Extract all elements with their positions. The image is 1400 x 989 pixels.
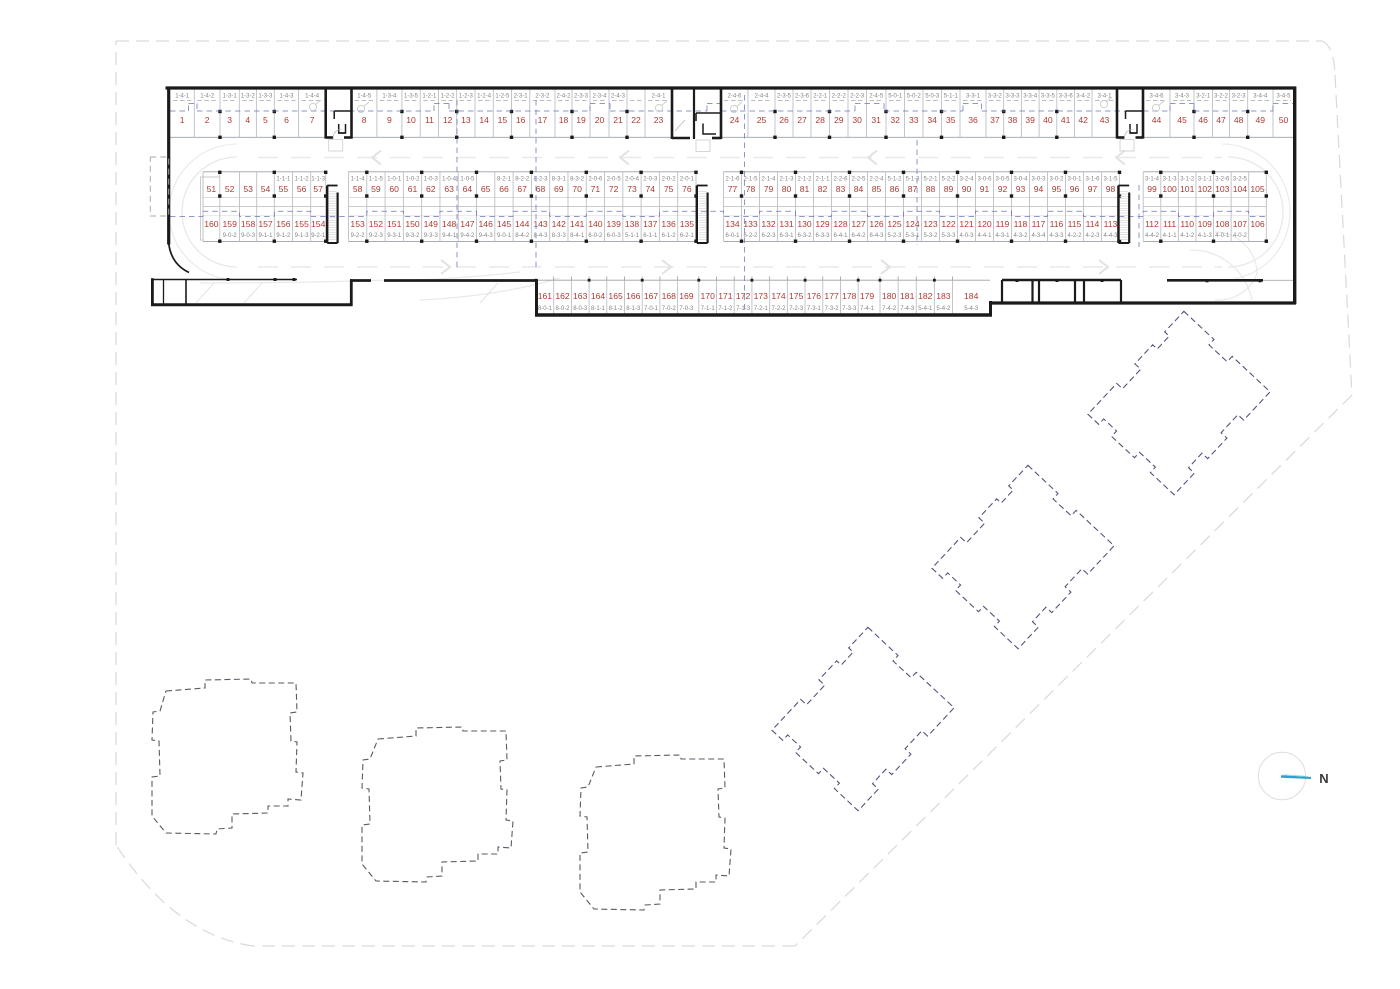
- svg-text:2-0-5: 2-0-5: [607, 176, 622, 182]
- svg-text:6-1-2: 6-1-2: [662, 233, 677, 239]
- svg-text:135: 135: [680, 219, 695, 229]
- svg-text:170: 170: [701, 291, 716, 301]
- svg-text:139: 139: [607, 219, 622, 229]
- svg-text:168: 168: [662, 291, 677, 301]
- svg-text:6-3-3: 6-3-3: [815, 233, 830, 239]
- svg-text:159: 159: [223, 219, 238, 229]
- svg-text:80: 80: [782, 184, 792, 194]
- svg-text:169: 169: [679, 291, 694, 301]
- svg-text:6-0-3: 6-0-3: [607, 233, 622, 239]
- svg-text:1-2-1: 1-2-1: [422, 93, 437, 99]
- svg-text:76: 76: [682, 184, 692, 194]
- svg-text:3-2-1: 3-2-1: [1196, 93, 1211, 99]
- svg-text:145: 145: [497, 219, 512, 229]
- svg-text:7-3-1: 7-3-1: [807, 306, 822, 312]
- svg-text:157: 157: [258, 219, 273, 229]
- svg-text:2-4-4: 2-4-4: [754, 93, 769, 99]
- svg-text:60: 60: [389, 184, 399, 194]
- svg-text:8-3-3: 8-3-3: [552, 233, 567, 239]
- svg-text:7: 7: [310, 115, 315, 125]
- svg-text:181: 181: [900, 291, 915, 301]
- svg-text:5-3-3: 5-3-3: [941, 233, 956, 239]
- svg-text:7-4-2: 7-4-2: [882, 306, 897, 312]
- svg-text:40: 40: [1043, 115, 1053, 125]
- svg-text:31: 31: [871, 115, 881, 125]
- svg-text:116: 116: [1050, 219, 1064, 229]
- svg-text:115: 115: [1068, 219, 1082, 229]
- svg-text:1-0-2: 1-0-2: [405, 176, 420, 182]
- svg-text:19: 19: [576, 115, 586, 125]
- svg-text:176: 176: [807, 291, 822, 301]
- svg-text:2-4-6: 2-4-6: [727, 93, 742, 99]
- svg-text:141: 141: [570, 219, 585, 229]
- svg-text:146: 146: [479, 219, 494, 229]
- svg-text:59: 59: [371, 184, 381, 194]
- svg-text:8-1-1: 8-1-1: [591, 306, 606, 312]
- svg-text:38: 38: [1008, 115, 1018, 125]
- svg-text:9: 9: [387, 115, 392, 125]
- svg-text:34: 34: [927, 115, 937, 125]
- svg-text:180: 180: [882, 291, 897, 301]
- svg-text:89: 89: [944, 184, 954, 194]
- svg-text:90: 90: [962, 184, 972, 194]
- svg-text:100: 100: [1162, 184, 1177, 194]
- svg-text:3-1-2: 3-1-2: [1180, 176, 1195, 182]
- svg-text:81: 81: [800, 184, 810, 194]
- svg-text:65: 65: [481, 184, 491, 194]
- svg-text:7-4-1: 7-4-1: [860, 306, 875, 312]
- svg-text:3-0-3: 3-0-3: [1031, 176, 1046, 182]
- svg-text:3-1-1: 3-1-1: [1198, 176, 1213, 182]
- svg-text:84: 84: [854, 184, 864, 194]
- svg-text:103: 103: [1215, 184, 1230, 194]
- svg-text:9-2-3: 9-2-3: [369, 233, 384, 239]
- svg-text:3-1-3: 3-1-3: [1163, 176, 1178, 182]
- svg-text:51: 51: [207, 184, 217, 194]
- svg-text:1: 1: [180, 115, 185, 125]
- svg-text:73: 73: [627, 184, 637, 194]
- svg-text:4-2-3: 4-2-3: [1085, 233, 1100, 239]
- svg-text:110: 110: [1180, 219, 1194, 229]
- svg-text:88: 88: [926, 184, 936, 194]
- svg-text:1-4-1: 1-4-1: [175, 93, 190, 99]
- svg-text:72: 72: [609, 184, 619, 194]
- svg-text:62: 62: [426, 184, 436, 194]
- svg-text:3-3-1: 3-3-1: [966, 93, 981, 99]
- svg-text:16: 16: [516, 115, 526, 125]
- svg-text:1-4-2: 1-4-2: [200, 93, 215, 99]
- svg-text:9-3-1: 9-3-1: [387, 233, 402, 239]
- svg-text:4-1-3: 4-1-3: [1198, 233, 1213, 239]
- svg-text:6-3-1: 6-3-1: [779, 233, 794, 239]
- svg-text:3-4-2: 3-4-2: [1076, 93, 1091, 99]
- svg-text:68: 68: [536, 184, 546, 194]
- svg-text:127: 127: [851, 219, 866, 229]
- svg-text:174: 174: [771, 291, 786, 301]
- svg-text:4-0-2: 4-0-2: [1233, 233, 1248, 239]
- svg-text:9-1-1: 9-1-1: [258, 233, 273, 239]
- svg-text:3-4-3: 3-4-3: [1175, 93, 1190, 99]
- svg-text:148: 148: [442, 219, 457, 229]
- svg-text:2-0-2: 2-0-2: [662, 176, 677, 182]
- svg-text:3-1-6: 3-1-6: [1085, 176, 1100, 182]
- svg-text:173: 173: [754, 291, 769, 301]
- svg-text:35: 35: [946, 115, 956, 125]
- svg-text:1-0-1: 1-0-1: [387, 176, 402, 182]
- svg-text:111: 111: [1163, 219, 1176, 229]
- svg-text:153: 153: [350, 219, 365, 229]
- svg-text:99: 99: [1147, 184, 1157, 194]
- svg-text:3-3-2: 3-3-2: [988, 93, 1003, 99]
- svg-text:113: 113: [1104, 219, 1118, 229]
- svg-text:24: 24: [730, 115, 740, 125]
- svg-text:7-4-3: 7-4-3: [900, 306, 915, 312]
- svg-text:4-3-2: 4-3-2: [1013, 233, 1028, 239]
- svg-text:9-3-2: 9-3-2: [405, 233, 420, 239]
- svg-text:33: 33: [909, 115, 919, 125]
- svg-text:5-4-3: 5-4-3: [964, 306, 979, 312]
- svg-text:5-3-2: 5-3-2: [923, 233, 938, 239]
- svg-text:3-2-3: 3-2-3: [1232, 93, 1247, 99]
- svg-text:7-2-1: 7-2-1: [754, 306, 769, 312]
- svg-text:101: 101: [1180, 184, 1195, 194]
- svg-text:6-4-1: 6-4-1: [833, 233, 848, 239]
- svg-text:8-0-1: 8-0-1: [538, 306, 553, 312]
- svg-text:132: 132: [761, 219, 776, 229]
- svg-text:7-1-2: 7-1-2: [718, 306, 733, 312]
- svg-text:77: 77: [728, 184, 738, 194]
- svg-text:12: 12: [443, 115, 453, 125]
- svg-text:118: 118: [1014, 219, 1028, 229]
- svg-text:42: 42: [1078, 115, 1088, 125]
- svg-text:167: 167: [644, 291, 659, 301]
- svg-text:8-1-3: 8-1-3: [626, 306, 641, 312]
- svg-text:3: 3: [227, 115, 232, 125]
- svg-text:109: 109: [1198, 219, 1213, 229]
- svg-text:7-2-3: 7-2-3: [789, 306, 804, 312]
- svg-text:2-1-1: 2-1-1: [815, 176, 830, 182]
- svg-text:5-0-1: 5-0-1: [888, 93, 903, 99]
- svg-text:5-1-3: 5-1-3: [905, 176, 920, 182]
- svg-text:15: 15: [498, 115, 508, 125]
- svg-text:27: 27: [797, 115, 807, 125]
- svg-text:102: 102: [1198, 184, 1213, 194]
- svg-text:20: 20: [595, 115, 605, 125]
- svg-text:52: 52: [225, 184, 235, 194]
- svg-text:5-0-3: 5-0-3: [925, 93, 940, 99]
- svg-text:61: 61: [408, 184, 418, 194]
- svg-text:39: 39: [1025, 115, 1035, 125]
- svg-text:1-2-3: 1-2-3: [459, 93, 474, 99]
- svg-text:5-2-2: 5-2-2: [941, 176, 956, 182]
- svg-text:156: 156: [276, 219, 291, 229]
- svg-text:133: 133: [743, 219, 758, 229]
- svg-text:74: 74: [646, 184, 656, 194]
- svg-text:161: 161: [538, 291, 553, 301]
- svg-text:1-1-5: 1-1-5: [369, 176, 384, 182]
- svg-text:29: 29: [834, 115, 844, 125]
- svg-text:3-1-4: 3-1-4: [1145, 176, 1160, 182]
- svg-text:13: 13: [461, 115, 471, 125]
- svg-text:9-4-1: 9-4-1: [442, 233, 457, 239]
- svg-text:64: 64: [463, 184, 473, 194]
- svg-text:8-3-2: 8-3-2: [570, 176, 585, 182]
- svg-text:58: 58: [353, 184, 363, 194]
- svg-text:54: 54: [261, 184, 271, 194]
- svg-text:1-2-2: 1-2-2: [441, 93, 456, 99]
- svg-text:5-3-1: 5-3-1: [905, 233, 920, 239]
- svg-text:163: 163: [573, 291, 588, 301]
- svg-text:4-4-1: 4-4-1: [977, 233, 992, 239]
- svg-text:122: 122: [941, 219, 956, 229]
- svg-text:7-1-1: 7-1-1: [701, 306, 716, 312]
- svg-text:2-0-4: 2-0-4: [625, 176, 640, 182]
- svg-text:66: 66: [499, 184, 509, 194]
- svg-text:4-1-2: 4-1-2: [1180, 233, 1195, 239]
- svg-text:7-2-2: 7-2-2: [771, 306, 786, 312]
- svg-text:7-0-2: 7-0-2: [662, 306, 677, 312]
- svg-text:160: 160: [204, 219, 219, 229]
- svg-text:107: 107: [1233, 219, 1248, 229]
- svg-text:1-4-3: 1-4-3: [279, 93, 294, 99]
- svg-text:4-0-3: 4-0-3: [959, 233, 974, 239]
- svg-text:150: 150: [405, 219, 420, 229]
- svg-text:4-4-3: 4-4-3: [1103, 233, 1118, 239]
- svg-text:2-2-2: 2-2-2: [832, 93, 847, 99]
- svg-text:95: 95: [1052, 184, 1062, 194]
- svg-text:2-2-6: 2-2-6: [833, 176, 848, 182]
- svg-text:1-4-4: 1-4-4: [305, 93, 320, 99]
- svg-text:1-0-3: 1-0-3: [424, 176, 439, 182]
- svg-text:5-0-2: 5-0-2: [907, 93, 922, 99]
- svg-text:N: N: [1319, 771, 1328, 786]
- svg-text:46: 46: [1198, 115, 1208, 125]
- svg-text:2-4-5: 2-4-5: [869, 93, 884, 99]
- svg-text:8-1-2: 8-1-2: [609, 306, 624, 312]
- svg-text:7-0-1: 7-0-1: [644, 306, 659, 312]
- svg-text:87: 87: [908, 184, 918, 194]
- svg-text:79: 79: [764, 184, 774, 194]
- svg-text:56: 56: [297, 184, 307, 194]
- svg-text:2-2-1: 2-2-1: [813, 93, 828, 99]
- svg-text:2-1-2: 2-1-2: [797, 176, 812, 182]
- svg-text:1-3-5: 1-3-5: [404, 93, 419, 99]
- svg-text:1-0-5: 1-0-5: [460, 176, 475, 182]
- svg-text:175: 175: [789, 291, 804, 301]
- svg-text:2-3-1: 2-3-1: [514, 93, 529, 99]
- svg-text:178: 178: [842, 291, 857, 301]
- svg-text:1-3-2: 1-3-2: [241, 93, 256, 99]
- svg-text:3-3-6: 3-3-6: [1059, 93, 1074, 99]
- svg-text:3-2-6: 3-2-6: [1215, 176, 1230, 182]
- svg-text:25: 25: [757, 115, 767, 125]
- svg-text:36: 36: [968, 115, 978, 125]
- svg-text:149: 149: [424, 219, 439, 229]
- svg-text:3-4-4: 3-4-4: [1253, 93, 1268, 99]
- svg-text:2-1-6: 2-1-6: [725, 176, 740, 182]
- svg-text:182: 182: [918, 291, 933, 301]
- svg-text:4-3-3: 4-3-3: [1049, 233, 1064, 239]
- svg-text:48: 48: [1234, 115, 1244, 125]
- svg-text:108: 108: [1215, 219, 1230, 229]
- svg-text:1-1-3: 1-1-3: [311, 176, 326, 182]
- svg-text:22: 22: [631, 115, 641, 125]
- svg-text:7-0-3: 7-0-3: [679, 306, 694, 312]
- svg-text:2-0-6: 2-0-6: [588, 176, 603, 182]
- svg-text:130: 130: [797, 219, 812, 229]
- svg-text:6-0-2: 6-0-2: [588, 233, 603, 239]
- svg-text:3-1-5: 3-1-5: [1103, 176, 1118, 182]
- svg-text:162: 162: [555, 291, 570, 301]
- svg-text:67: 67: [517, 184, 527, 194]
- svg-text:2-4-2: 2-4-2: [556, 93, 571, 99]
- svg-text:2: 2: [205, 115, 210, 125]
- svg-text:6: 6: [284, 115, 289, 125]
- svg-text:3-0-6: 3-0-6: [977, 176, 992, 182]
- svg-text:96: 96: [1070, 184, 1080, 194]
- svg-text:6-3-2: 6-3-2: [797, 233, 812, 239]
- svg-text:2-3-4: 2-3-4: [592, 93, 607, 99]
- svg-text:78: 78: [746, 184, 756, 194]
- svg-text:2-0-3: 2-0-3: [643, 176, 658, 182]
- svg-text:155: 155: [294, 219, 309, 229]
- svg-text:1-4-5: 1-4-5: [357, 93, 372, 99]
- svg-text:6-1-1: 6-1-1: [643, 233, 658, 239]
- svg-text:4-4-2: 4-4-2: [1145, 233, 1160, 239]
- svg-text:23: 23: [654, 115, 664, 125]
- svg-text:1-1-1: 1-1-1: [276, 176, 291, 182]
- svg-text:5-4-1: 5-4-1: [918, 306, 933, 312]
- svg-text:9-3-3: 9-3-3: [424, 233, 439, 239]
- svg-text:5-2-1: 5-2-1: [923, 176, 938, 182]
- svg-text:142: 142: [552, 219, 567, 229]
- svg-text:11: 11: [425, 115, 434, 125]
- svg-text:1-1-2: 1-1-2: [295, 176, 310, 182]
- svg-text:4-3-4: 4-3-4: [1031, 233, 1046, 239]
- svg-text:4-3-1: 4-3-1: [995, 233, 1010, 239]
- svg-text:6-2-2: 6-2-2: [743, 233, 758, 239]
- svg-text:114: 114: [1086, 219, 1100, 229]
- svg-text:6-2-3: 6-2-3: [761, 233, 776, 239]
- svg-text:2-3-3: 2-3-3: [574, 93, 589, 99]
- svg-text:147: 147: [460, 219, 475, 229]
- svg-text:123: 123: [923, 219, 938, 229]
- svg-text:140: 140: [588, 219, 603, 229]
- svg-text:41: 41: [1061, 115, 1071, 125]
- svg-text:26: 26: [779, 115, 789, 125]
- svg-text:134: 134: [725, 219, 740, 229]
- svg-text:2-1-5: 2-1-5: [743, 176, 758, 182]
- svg-text:3-4-6: 3-4-6: [1149, 93, 1164, 99]
- svg-text:50: 50: [1279, 115, 1289, 125]
- svg-text:2-3-6: 2-3-6: [795, 93, 810, 99]
- svg-text:97: 97: [1088, 184, 1098, 194]
- svg-text:125: 125: [887, 219, 902, 229]
- svg-text:158: 158: [241, 219, 256, 229]
- svg-text:117: 117: [1032, 219, 1046, 229]
- svg-text:37: 37: [990, 115, 1000, 125]
- svg-text:2-4-3: 2-4-3: [611, 93, 626, 99]
- svg-text:138: 138: [625, 219, 640, 229]
- svg-text:2-3-2: 2-3-2: [535, 93, 550, 99]
- svg-text:30: 30: [852, 115, 862, 125]
- svg-text:2-1-3: 2-1-3: [779, 176, 794, 182]
- svg-text:71: 71: [591, 184, 601, 194]
- svg-text:5-2-3: 5-2-3: [887, 233, 902, 239]
- svg-text:3-0-1: 3-0-1: [1067, 176, 1082, 182]
- svg-text:98: 98: [1106, 184, 1116, 194]
- svg-text:86: 86: [890, 184, 900, 194]
- svg-text:2-2-4: 2-2-4: [869, 176, 884, 182]
- svg-text:183: 183: [936, 291, 951, 301]
- svg-text:154: 154: [311, 219, 326, 229]
- svg-text:3-3-3: 3-3-3: [1005, 93, 1020, 99]
- svg-text:121: 121: [959, 219, 974, 229]
- svg-text:128: 128: [833, 219, 848, 229]
- svg-text:179: 179: [860, 291, 875, 301]
- svg-text:3-4-5: 3-4-5: [1276, 93, 1291, 99]
- svg-text:8-2-2: 8-2-2: [515, 176, 530, 182]
- svg-text:8-4-2: 8-4-2: [515, 233, 530, 239]
- svg-text:8-3-1: 8-3-1: [552, 176, 567, 182]
- svg-text:32: 32: [890, 115, 900, 125]
- svg-text:184: 184: [964, 291, 979, 301]
- svg-text:9-0-1: 9-0-1: [497, 233, 512, 239]
- svg-text:85: 85: [872, 184, 882, 194]
- svg-text:104: 104: [1233, 184, 1248, 194]
- svg-text:136: 136: [661, 219, 676, 229]
- svg-text:9-4-3: 9-4-3: [479, 233, 494, 239]
- svg-text:43: 43: [1100, 115, 1110, 125]
- svg-text:2-0-1: 2-0-1: [680, 176, 695, 182]
- svg-text:57: 57: [313, 184, 323, 194]
- svg-text:75: 75: [664, 184, 674, 194]
- svg-text:144: 144: [515, 219, 530, 229]
- svg-text:7-1-3: 7-1-3: [736, 306, 751, 312]
- svg-text:4-1-1: 4-1-1: [1163, 233, 1178, 239]
- svg-text:164: 164: [591, 291, 606, 301]
- svg-text:131: 131: [779, 219, 794, 229]
- svg-text:2-4-1: 2-4-1: [651, 93, 666, 99]
- svg-text:17: 17: [538, 115, 548, 125]
- svg-text:92: 92: [998, 184, 1008, 194]
- svg-text:3-0-5: 3-0-5: [995, 176, 1010, 182]
- svg-text:3-0-2: 3-0-2: [1049, 176, 1064, 182]
- svg-text:120: 120: [977, 219, 992, 229]
- svg-text:6-4-3: 6-4-3: [869, 233, 884, 239]
- svg-text:3-0-4: 3-0-4: [1013, 176, 1028, 182]
- svg-text:9-4-2: 9-4-2: [460, 233, 475, 239]
- svg-text:105: 105: [1250, 184, 1265, 194]
- svg-text:1-1-4: 1-1-4: [351, 176, 366, 182]
- svg-text:28: 28: [815, 115, 825, 125]
- svg-text:143: 143: [533, 219, 548, 229]
- svg-text:3-2-4: 3-2-4: [959, 176, 974, 182]
- svg-text:10: 10: [406, 115, 416, 125]
- svg-text:47: 47: [1216, 115, 1226, 125]
- svg-text:4: 4: [245, 115, 250, 125]
- svg-text:14: 14: [479, 115, 489, 125]
- svg-text:8-0-2: 8-0-2: [555, 306, 570, 312]
- svg-text:6-0-1: 6-0-1: [725, 233, 740, 239]
- svg-text:1-3-1: 1-3-1: [223, 93, 238, 99]
- svg-text:4-2-2: 4-2-2: [1067, 233, 1082, 239]
- svg-text:2-2-5: 2-2-5: [851, 176, 866, 182]
- svg-text:124: 124: [905, 219, 920, 229]
- svg-text:94: 94: [1034, 184, 1044, 194]
- svg-text:165: 165: [608, 291, 623, 301]
- svg-text:9-1-3: 9-1-3: [295, 233, 310, 239]
